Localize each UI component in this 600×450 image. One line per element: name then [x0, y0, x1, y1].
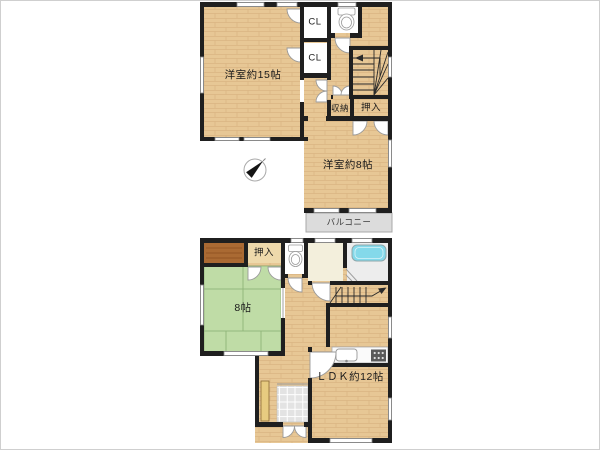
toilet-fixture-2f [338, 8, 355, 30]
oshiire-2f-label: 押入 [361, 103, 381, 113]
floor-2f-plan [200, 2, 392, 232]
kitchen-stove [371, 350, 386, 362]
kitchen-counter [332, 347, 392, 367]
oshiire-1f-label: 押入 [254, 248, 274, 258]
ldk-label: ＬＤＫ約12帖 [316, 372, 384, 383]
floor-1f-plan [200, 238, 392, 443]
washroom [308, 243, 343, 281]
storage-label: 収納 [331, 104, 349, 113]
toilet-fixture-1f [289, 245, 303, 267]
kitchen-sink [336, 349, 357, 361]
floorplan-image: 洋室約15帖 CL CL 収納 押入 洋室約8帖 バルコニー 押入 8帖 ＬＤＫ… [0, 0, 600, 450]
shoe-cabinet [261, 381, 269, 421]
room-label-western-15: 洋室約15帖 [225, 70, 282, 81]
north-arrow-icon [244, 159, 266, 182]
closet-label-cl1: CL [308, 17, 321, 27]
floorplan-drawing [0, 0, 600, 450]
room-label-western-8: 洋室約8帖 [323, 160, 373, 171]
tatami-room-label: 8帖 [234, 303, 251, 314]
genkan-tile [277, 386, 308, 422]
tokonoma-closet [204, 243, 244, 264]
closet-label-cl2: CL [308, 53, 321, 63]
balcony-label: バルコニー [327, 218, 372, 227]
